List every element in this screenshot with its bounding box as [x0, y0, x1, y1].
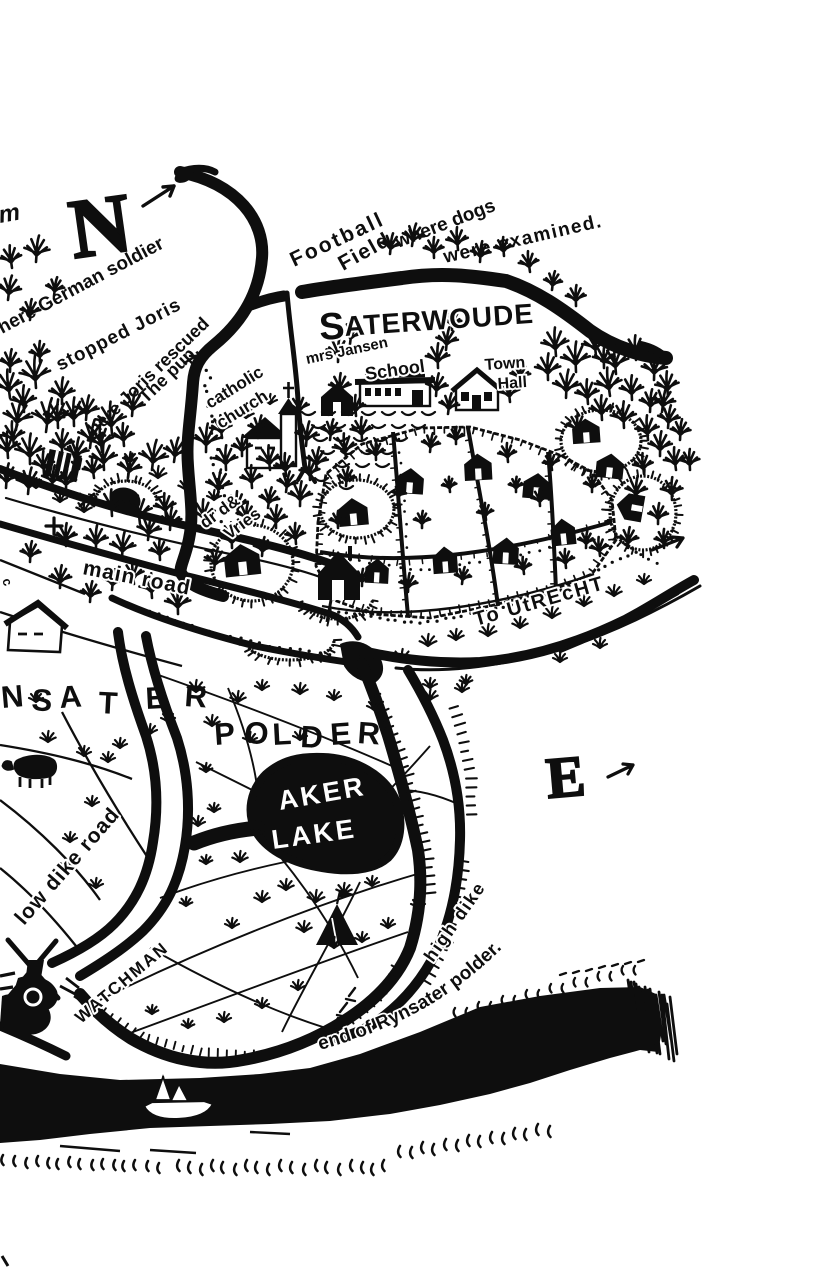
- svg-text:L: L: [272, 716, 293, 752]
- svg-text:D: D: [300, 719, 324, 755]
- svg-text:Hall: Hall: [497, 374, 527, 393]
- svg-text:O: O: [244, 715, 270, 751]
- svg-text:N: N: [0, 678, 25, 715]
- svg-text:T: T: [98, 685, 119, 721]
- svg-text:E: E: [145, 680, 167, 716]
- svg-text:S: S: [31, 682, 54, 718]
- svg-text:E: E: [329, 716, 352, 752]
- svg-text:Town: Town: [484, 354, 526, 374]
- svg-text:E: E: [543, 743, 587, 811]
- svg-text:P: P: [213, 716, 236, 752]
- svg-text:R: R: [357, 715, 382, 751]
- svg-text:R: R: [184, 678, 209, 714]
- svg-text:A: A: [58, 679, 83, 715]
